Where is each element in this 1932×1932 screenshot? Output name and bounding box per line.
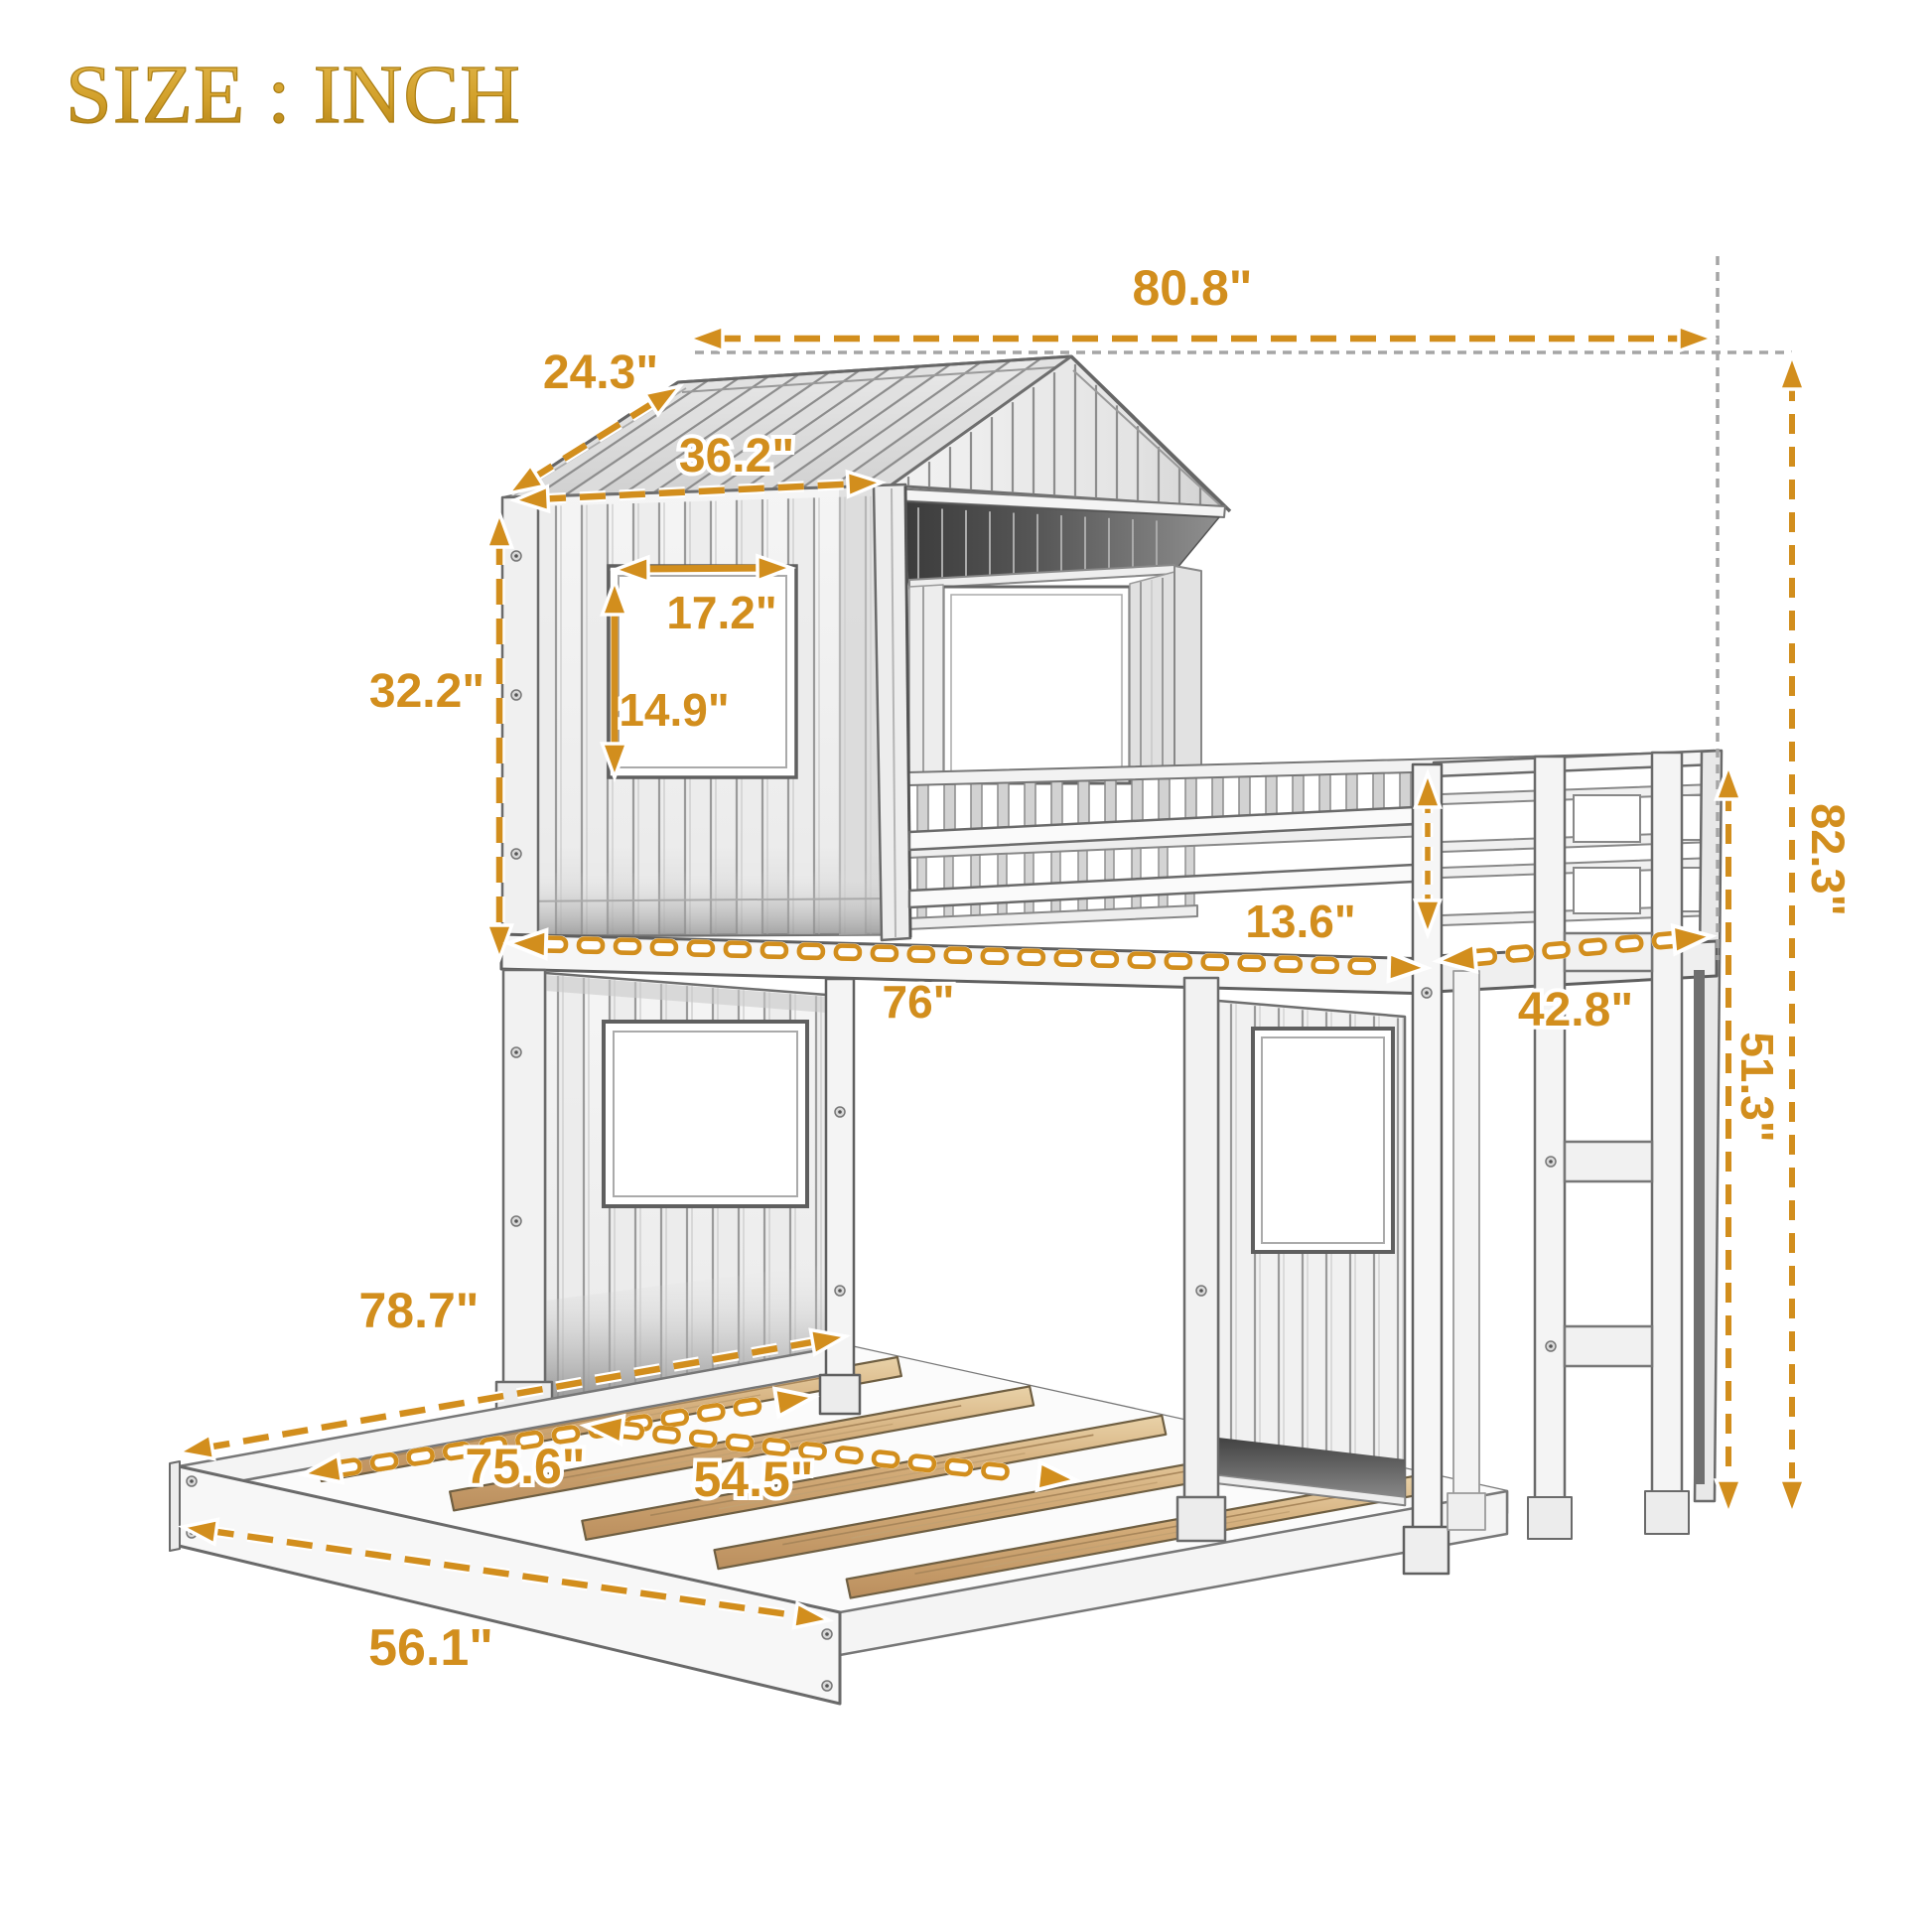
svg-text:82.3": 82.3"	[1802, 803, 1855, 916]
svg-text:36.2": 36.2"	[679, 430, 794, 483]
svg-text:32.2": 32.2"	[369, 665, 484, 718]
svg-text:SIZE : INCH: SIZE : INCH	[66, 49, 521, 141]
svg-text:76": 76"	[883, 976, 955, 1028]
svg-text:78.7": 78.7"	[358, 1283, 479, 1338]
svg-text:17.2": 17.2"	[666, 587, 776, 638]
svg-text:13.6": 13.6"	[1245, 896, 1355, 947]
svg-text:14.9": 14.9"	[619, 684, 729, 736]
svg-text:54.5": 54.5"	[693, 1451, 813, 1507]
svg-text:51.3": 51.3"	[1731, 1032, 1783, 1142]
svg-text:56.1": 56.1"	[368, 1619, 493, 1677]
svg-text:42.8": 42.8"	[1518, 984, 1633, 1036]
svg-text:24.3": 24.3"	[543, 346, 658, 399]
svg-text:75.6": 75.6"	[465, 1439, 585, 1494]
svg-text:80.8": 80.8"	[1132, 260, 1252, 316]
